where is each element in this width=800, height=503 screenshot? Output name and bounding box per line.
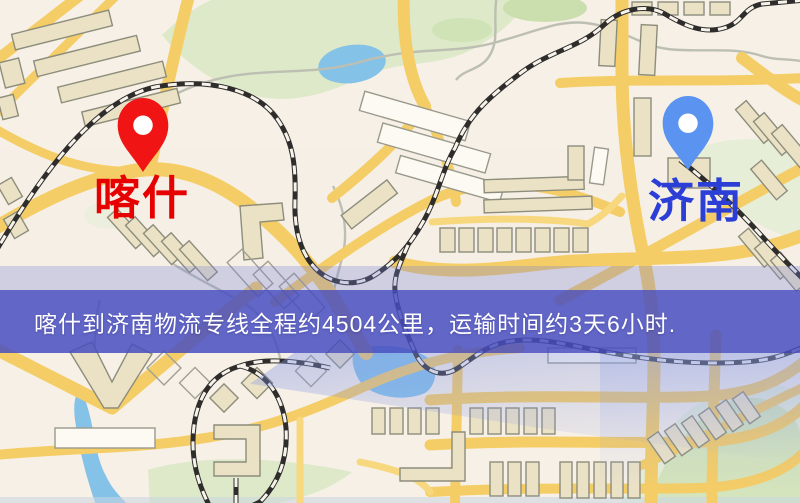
map-screenshot: 喀什 济南 喀什到济南物流专线全程约4504公里，运输时间约3天6小时. [0, 0, 800, 503]
destination-pin-icon[interactable] [662, 96, 714, 170]
origin-label: 喀什 [32, 174, 252, 224]
origin-pin-icon[interactable] [117, 98, 169, 172]
banner-halo [0, 266, 800, 290]
route-info-text: 喀什到济南物流专线全程约4504公里，运输时间约3天6小时. [0, 305, 676, 339]
destination-label: 济南 [586, 177, 800, 227]
route-info-banner: 喀什到济南物流专线全程约4504公里，运输时间约3天6小时. [0, 290, 800, 353]
map-canvas[interactable] [0, 0, 800, 503]
